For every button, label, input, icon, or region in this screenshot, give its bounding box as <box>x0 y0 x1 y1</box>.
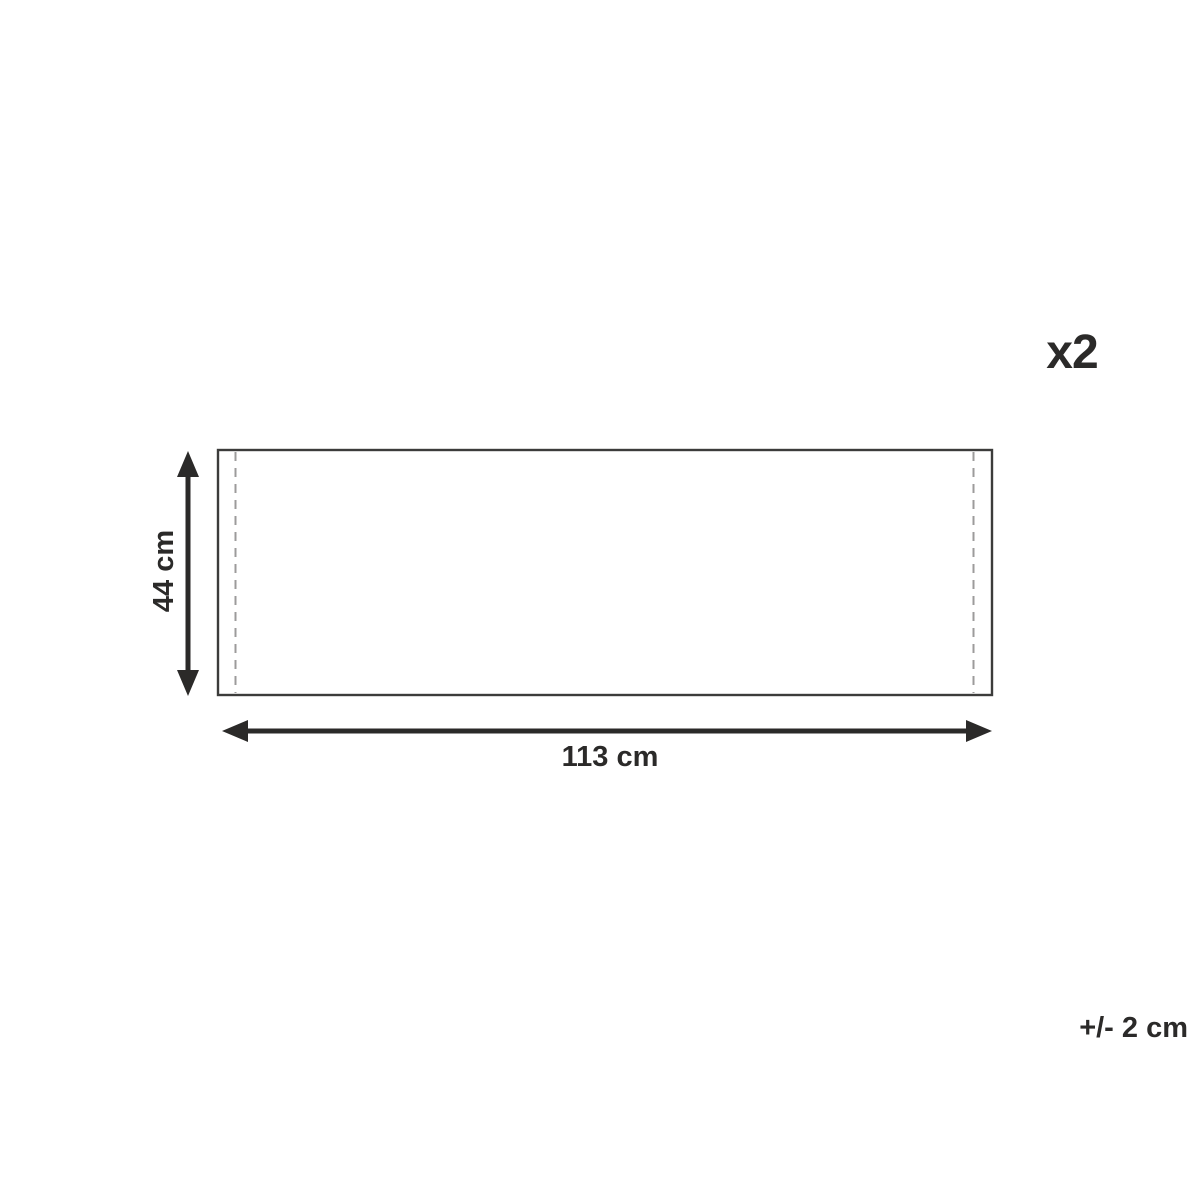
product-dimension-diagram: x2 44 cm 113 cm +/- 2 cm <box>0 0 1200 1200</box>
quantity-label: x2 <box>1042 325 1102 380</box>
arrowhead-down-icon <box>177 670 199 696</box>
width-dimension-label: 113 cm <box>520 741 700 774</box>
arrowhead-up-icon <box>177 451 199 477</box>
product-outline <box>218 450 992 695</box>
width-dimension-arrow <box>222 720 992 742</box>
tolerance-label: +/- 2 cm <box>988 1012 1188 1045</box>
arrowhead-right-icon <box>966 720 992 742</box>
height-dimension-arrow <box>177 451 199 696</box>
arrowhead-left-icon <box>222 720 248 742</box>
height-dimension-label: 44 cm <box>148 509 180 633</box>
